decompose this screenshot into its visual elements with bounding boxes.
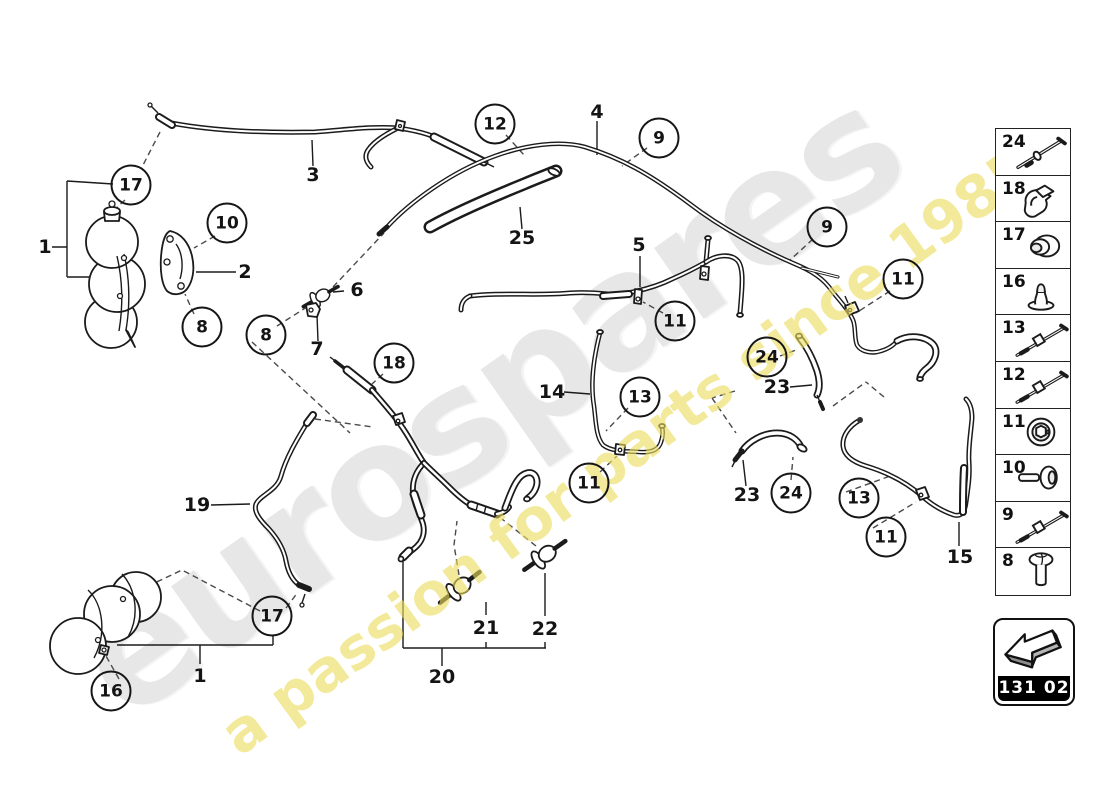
legend-item-16[interactable]: 16: [995, 268, 1071, 316]
callout-label-23[interactable]: 23: [764, 376, 790, 398]
callout-circle-24[interactable]: 24: [747, 337, 788, 378]
callout-circle-8[interactable]: 8: [246, 315, 287, 356]
legend-item-8[interactable]: 8: [995, 547, 1071, 595]
part-group-code: 131 02: [998, 676, 1070, 701]
callout-label-21[interactable]: 21: [473, 617, 499, 639]
legend-item-11[interactable]: 11: [995, 408, 1071, 456]
dome-screw-icon: [1012, 456, 1070, 500]
callout-label-23[interactable]: 23: [734, 484, 760, 506]
callout-label-6[interactable]: 6: [350, 279, 363, 301]
legend: 241817161312111098: [995, 128, 1071, 596]
rod-clip-icon: [1012, 363, 1070, 407]
arrow-icon: [999, 624, 1069, 674]
callout-label-14[interactable]: 14: [539, 381, 565, 403]
pan-screw-icon: [1012, 549, 1070, 593]
rod-clip-icon: [1012, 316, 1070, 360]
legend-item-24[interactable]: 24: [995, 128, 1071, 176]
callout-label-3[interactable]: 3: [306, 164, 319, 186]
callout-label-19[interactable]: 19: [184, 494, 210, 516]
callout-label-2[interactable]: 2: [238, 261, 251, 283]
callout-circle-13[interactable]: 13: [620, 377, 661, 418]
round-nut-icon: [1012, 410, 1070, 454]
long-pin-icon: [1012, 130, 1070, 174]
callout-label-1[interactable]: 1: [38, 236, 51, 258]
callout-circle-11[interactable]: 11: [655, 301, 696, 342]
clamp-clip-icon: [1012, 177, 1070, 221]
part-group-code-box[interactable]: 131 02: [993, 618, 1075, 706]
callout-circle-11[interactable]: 11: [866, 517, 907, 558]
grommet-cap-icon: [1012, 223, 1070, 267]
callout-label-25[interactable]: 25: [509, 227, 535, 249]
legend-item-18[interactable]: 18: [995, 175, 1071, 223]
legend-item-9[interactable]: 9: [995, 501, 1071, 549]
callout-circle-11[interactable]: 11: [883, 259, 924, 300]
callout-circle-12[interactable]: 12: [475, 104, 516, 145]
callout-label-4[interactable]: 4: [590, 101, 603, 123]
callout-circle-17[interactable]: 17: [111, 165, 152, 206]
rubber-plug-icon: [1012, 270, 1070, 314]
callout-circle-9[interactable]: 9: [807, 207, 848, 248]
callout-circle-16[interactable]: 16: [91, 671, 132, 712]
rod-clip-icon: [1012, 503, 1070, 547]
parts-diagram-page: eurospares: [0, 0, 1100, 800]
callout-label-22[interactable]: 22: [532, 618, 558, 640]
callout-label-5[interactable]: 5: [632, 234, 645, 256]
legend-item-17[interactable]: 17: [995, 221, 1071, 269]
callout-circle-18[interactable]: 18: [374, 343, 415, 384]
callout-circle-17[interactable]: 17: [252, 596, 293, 637]
callout-circle-9[interactable]: 9: [639, 118, 680, 159]
callout-label-1[interactable]: 1: [193, 665, 206, 687]
legend-item-12[interactable]: 12: [995, 361, 1071, 409]
callout-circle-11[interactable]: 11: [569, 463, 610, 504]
callout-circle-8[interactable]: 8: [182, 307, 223, 348]
legend-item-13[interactable]: 13: [995, 314, 1071, 362]
callout-circle-13[interactable]: 13: [839, 478, 880, 519]
legend-item-10[interactable]: 10: [995, 454, 1071, 502]
callout-label-7[interactable]: 7: [310, 338, 323, 360]
callout-label-15[interactable]: 15: [947, 546, 973, 568]
callout-circle-10[interactable]: 10: [207, 203, 248, 244]
callout-circle-24[interactable]: 24: [771, 473, 812, 514]
callout-label-20[interactable]: 20: [429, 666, 455, 688]
callout-layer: 1171028867312254959111118141324231123241…: [0, 0, 1100, 800]
